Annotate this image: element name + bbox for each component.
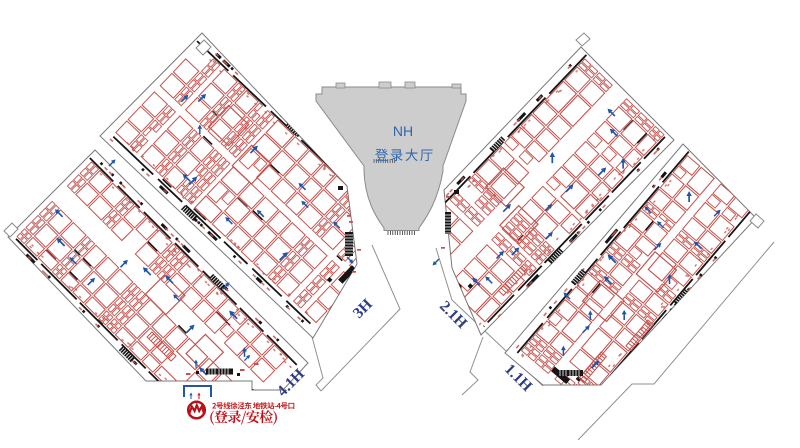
svg-text:NH: NH <box>393 123 413 139</box>
